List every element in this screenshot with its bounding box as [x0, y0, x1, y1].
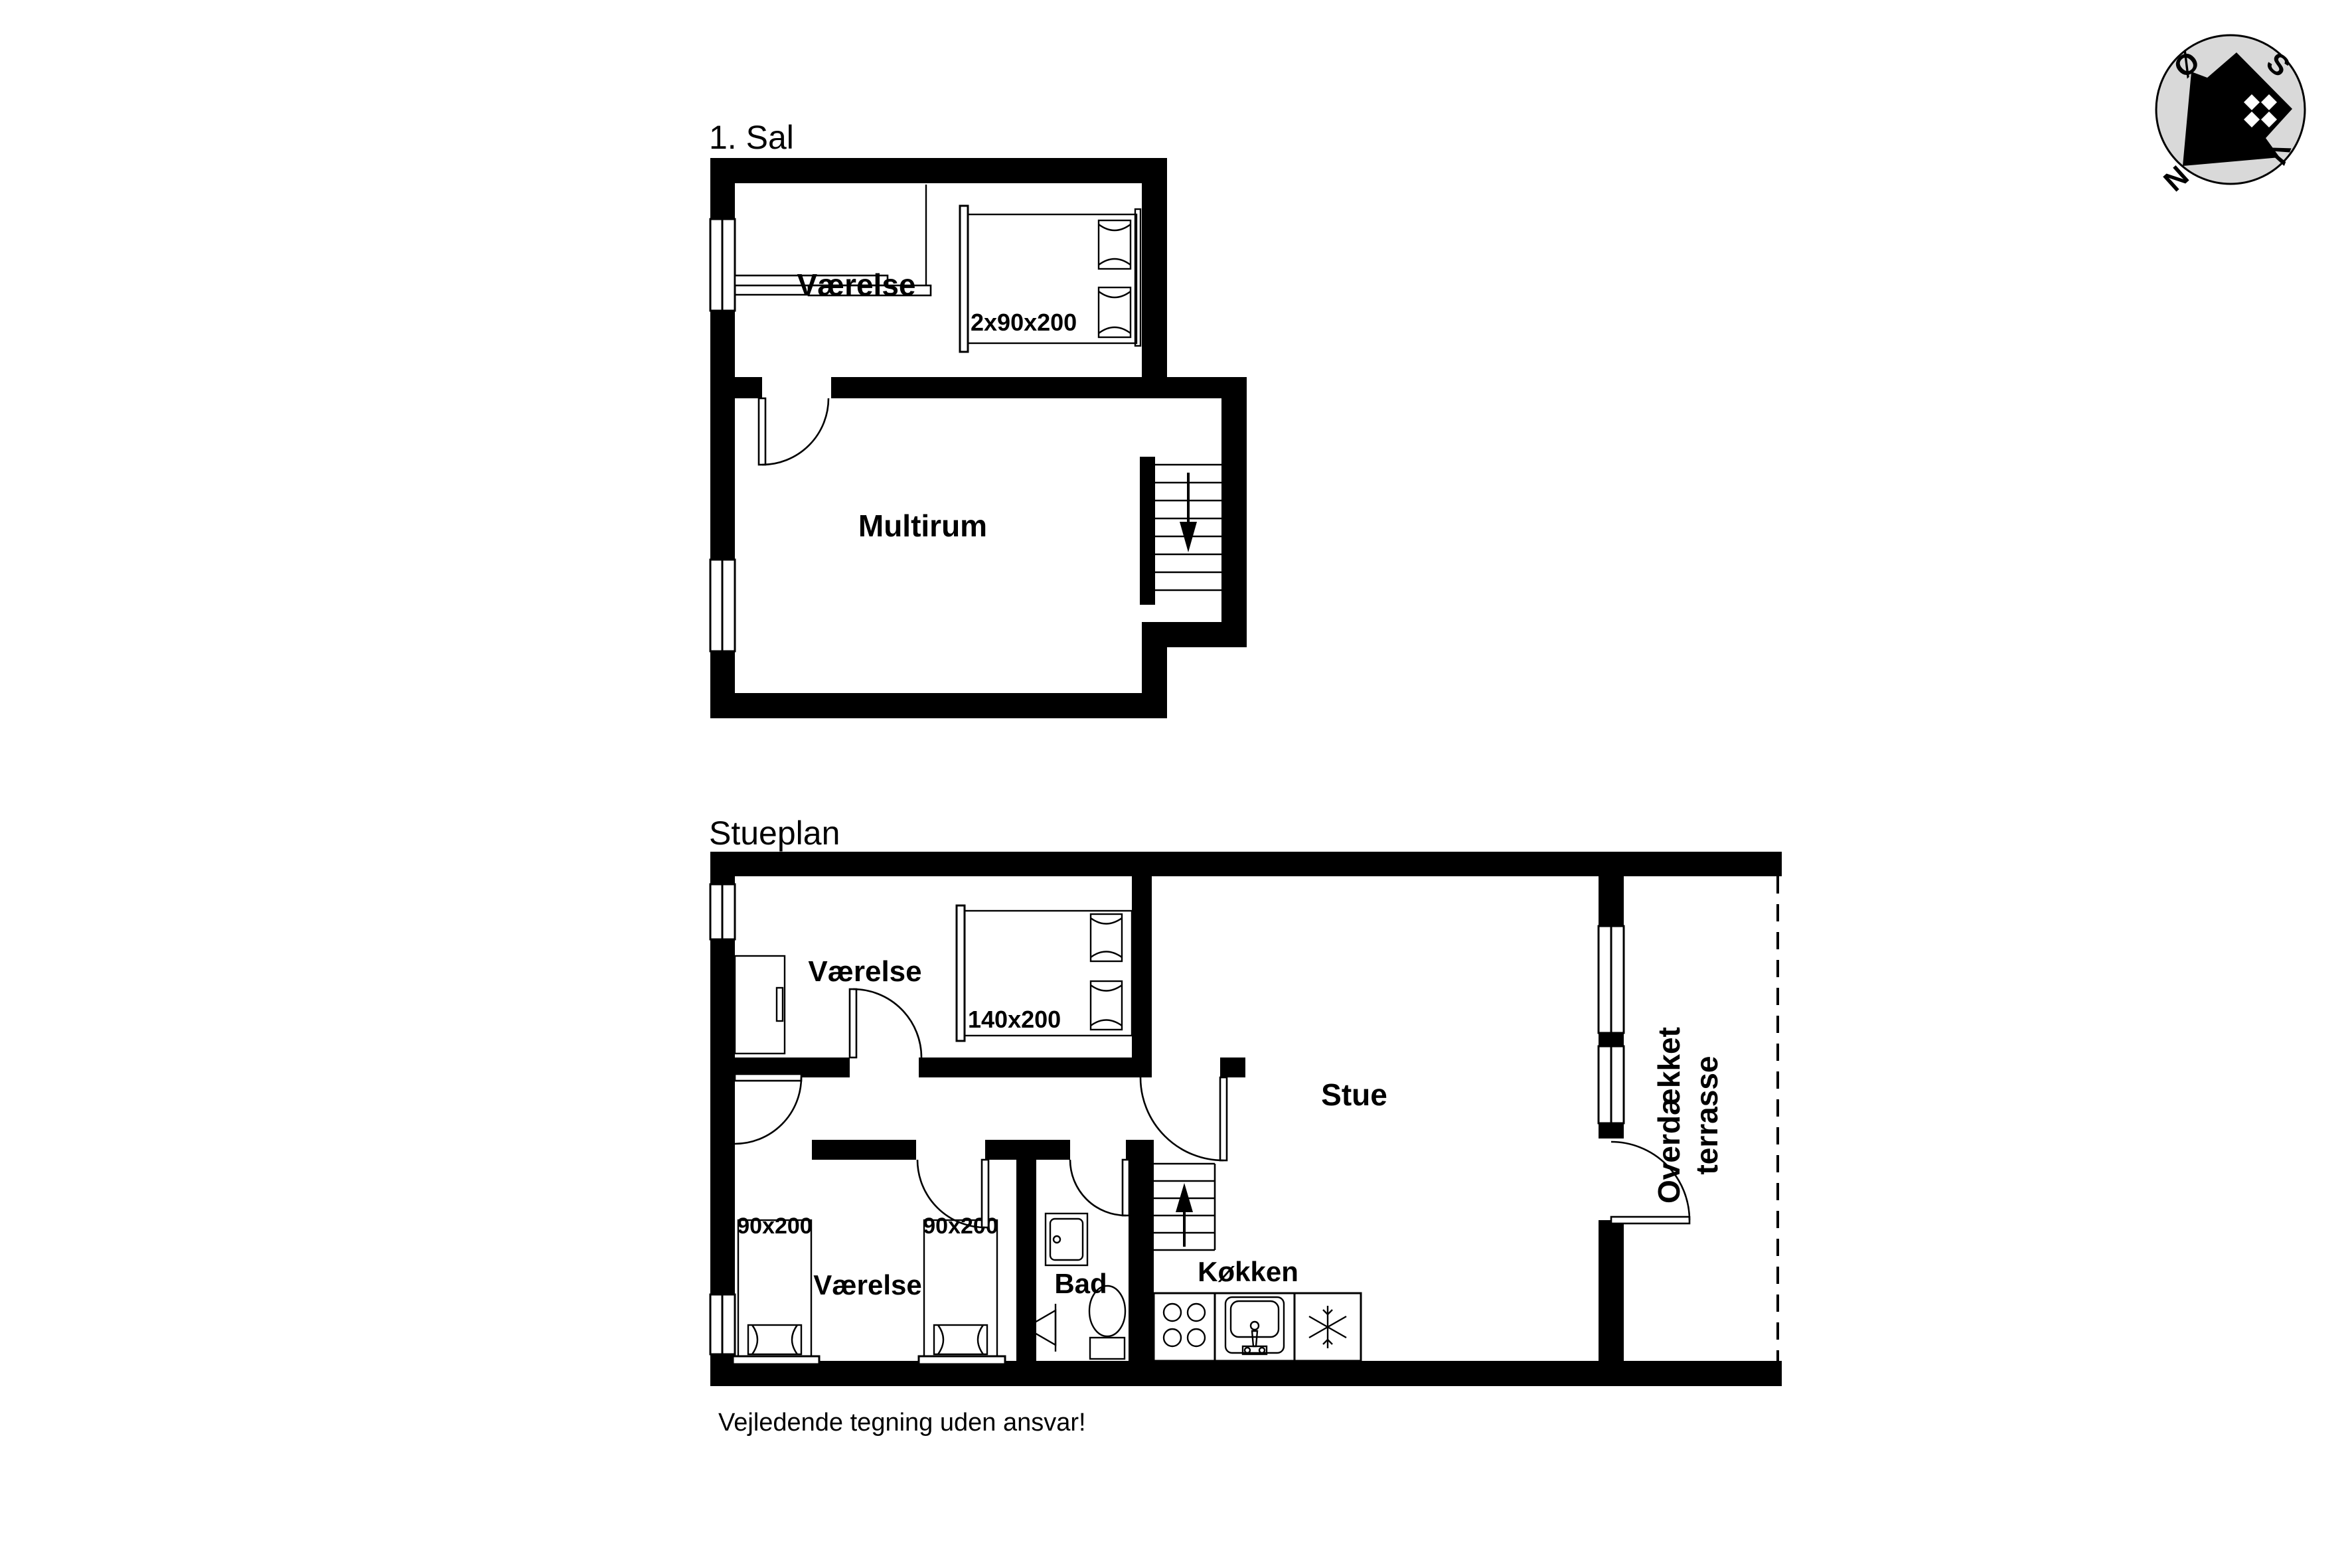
- stove-burners-icon: [1164, 1304, 1205, 1346]
- upper-floor-walls: [710, 158, 1247, 718]
- pillow: [748, 1325, 801, 1354]
- ground-wardrobe: [735, 956, 785, 1054]
- terrace-label-line1: Overdækket: [1652, 1027, 1686, 1204]
- upper-bed-size-label: 2x90x200: [971, 309, 1077, 336]
- stairs-down: [1155, 465, 1221, 590]
- door-top-bedroom: [850, 989, 921, 1058]
- upper-floor-title: 1. Sal: [709, 119, 794, 156]
- floor-plan-page: 1. Sal: [0, 0, 2352, 1568]
- ground-floor-plan: Stueplan: [709, 815, 1782, 1386]
- living-room-window-lower: [1599, 1046, 1624, 1123]
- ground-bedroom-bottom-label: Værelse: [813, 1269, 921, 1300]
- upper-bedroom-label: Værelse: [797, 268, 915, 302]
- pillow: [1091, 914, 1122, 961]
- single-bed-2: 90x200: [919, 1214, 1005, 1364]
- upper-multiroom-label: Multirum: [858, 509, 987, 543]
- upper-interior-door: [759, 398, 828, 465]
- floor-plan-canvas: 1. Sal: [0, 0, 2352, 1568]
- kitchen-sink-icon: [1225, 1297, 1284, 1354]
- upper-multiroom-window: [710, 560, 735, 651]
- pillow: [1099, 287, 1131, 337]
- bed-size-label-140x200: 140x200: [968, 1006, 1061, 1033]
- kitchen-counter: [1154, 1293, 1361, 1361]
- upper-floor-plan: 1. Sal: [709, 119, 1247, 718]
- pillow: [1099, 220, 1131, 269]
- disclaimer-text: Vejledende tegning uden ansvar!: [718, 1409, 1086, 1437]
- pillow: [1091, 981, 1122, 1030]
- upper-bedroom-window: [710, 219, 735, 311]
- living-room-window-upper: [1599, 926, 1624, 1033]
- bath-label: Bad: [1054, 1268, 1107, 1299]
- double-bed-140x200: 140x200: [957, 905, 1132, 1041]
- upper-double-bed: 2x90x200: [960, 206, 1140, 352]
- ground-bedroom-top-window: [710, 884, 735, 939]
- ground-floor-title: Stueplan: [709, 815, 840, 852]
- stairs-up: [1154, 1164, 1215, 1250]
- bath-vanity-sink: [1046, 1214, 1087, 1265]
- kitchen-label: Køkken: [1198, 1256, 1298, 1287]
- terrace-label-line2: terrasse: [1689, 1056, 1724, 1174]
- fridge-snowflake-icon: [1309, 1306, 1346, 1348]
- single-bed-1: 90x200: [733, 1214, 819, 1364]
- living-room-label: Stue: [1321, 1077, 1387, 1112]
- door-hall-to-bottom-bedroom-left: [735, 1074, 801, 1144]
- pillow: [934, 1325, 987, 1354]
- compass-rose: Ø S V N: [2156, 35, 2305, 198]
- door-bath: [1070, 1160, 1129, 1215]
- ground-bedroom-bottom-window: [710, 1294, 735, 1354]
- ground-bedroom-top-label: Værelse: [808, 955, 921, 988]
- bed-size-label-90x200: 90x200: [737, 1214, 812, 1239]
- stairs-down-arrow-icon: [1180, 473, 1197, 552]
